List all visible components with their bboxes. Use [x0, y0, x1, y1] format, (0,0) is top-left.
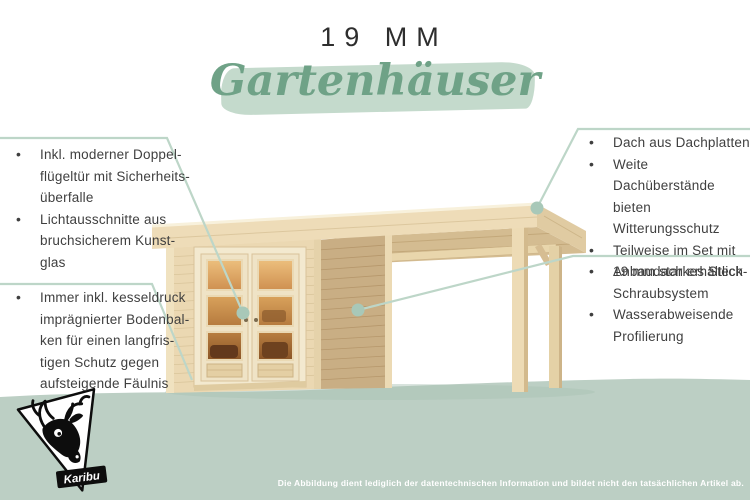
double-door [194, 247, 306, 387]
callout-text: Dach aus Dachplatten [613, 132, 750, 154]
callout-text: Immer inkl. kesseldruck imprägnierter Bo… [40, 287, 206, 395]
callout-left-bottom: • Immer inkl. kesseldruck imprägnierter … [10, 287, 206, 395]
callout-text: Weite Dachüberstände bieten Witterungssc… [613, 154, 750, 240]
callout-text: Lichtausschnitte aus bruchsicherem Kunst… [40, 209, 192, 274]
callout-right-bottom: • 19 mm starkes Steck- Schraubsystem • W… [583, 261, 750, 347]
bullet-icon: • [583, 240, 613, 262]
bullet-icon: • [10, 144, 40, 166]
callout-dot [352, 304, 365, 317]
disclaimer-text: Die Abbildung dient lediglich der datent… [278, 478, 744, 488]
callout-text: Wasserabweisende Profilierung [613, 304, 750, 347]
infographic-page: Karibu 19 MM Gartenhäuser • Inkl. modern… [0, 0, 750, 500]
callout-item: • 19 mm starkes Steck- Schraubsystem [583, 261, 750, 304]
callout-item: • Lichtausschnitte aus bruchsicherem Kun… [10, 209, 192, 274]
callout-item: • Inkl. moderner Doppel- flügeltür mit S… [10, 144, 192, 209]
page-subtitle: Gartenhäuser [0, 56, 750, 106]
bullet-icon: • [583, 304, 613, 326]
bullet-icon: • [583, 261, 613, 283]
bullet-icon: • [10, 287, 40, 309]
callout-text: Inkl. moderner Doppel- flügeltür mit Sic… [40, 144, 192, 209]
bullet-icon: • [583, 154, 613, 176]
callout-dot [531, 202, 544, 215]
callout-item: • Immer inkl. kesseldruck imprägnierter … [10, 287, 206, 395]
callout-item: • Wasserabweisende Profilierung [583, 304, 750, 347]
garden-shed [152, 204, 586, 393]
callout-text: 19 mm starkes Steck- Schraubsystem [613, 261, 750, 304]
callout-left-top: • Inkl. moderner Doppel- flügeltür mit S… [10, 144, 192, 273]
bullet-icon: • [583, 132, 613, 154]
callout-right-top: • Dach aus Dachplatten • Weite Dachübers… [583, 132, 750, 283]
page-title: 19 MM [0, 22, 750, 53]
callout-item: • Dach aus Dachplatten [583, 132, 750, 154]
bullet-icon: • [10, 209, 40, 231]
callout-dot [237, 307, 250, 320]
callout-item: • Weite Dachüberstände bieten Witterungs… [583, 154, 750, 240]
